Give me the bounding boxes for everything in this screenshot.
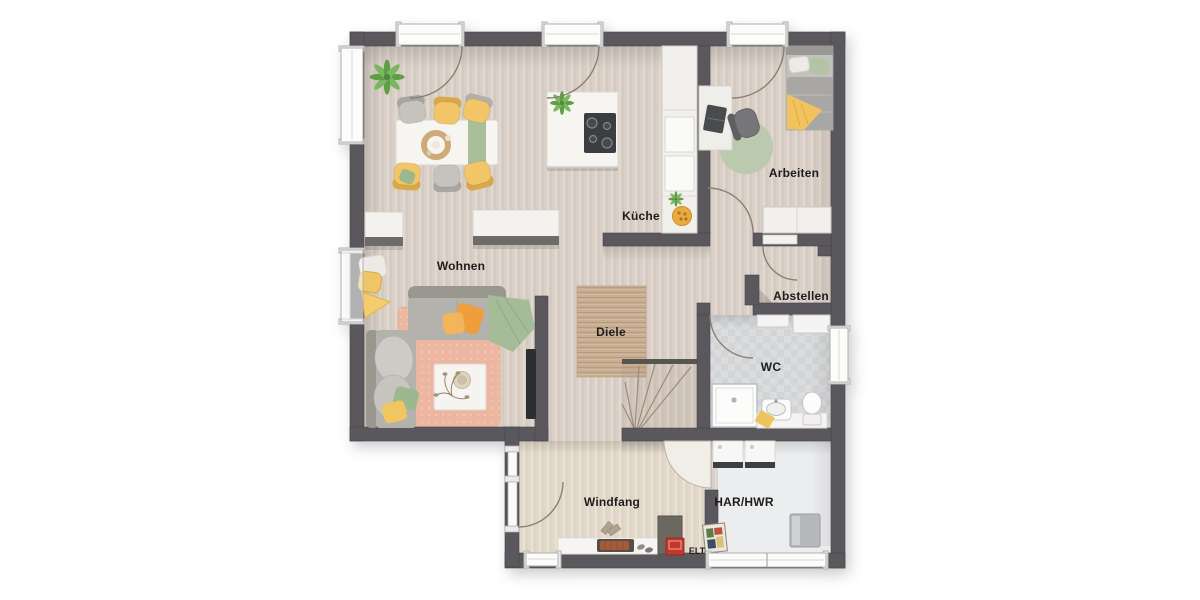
desk — [699, 86, 732, 150]
wc-shelf — [757, 315, 789, 327]
boiler — [790, 514, 820, 547]
office-cabinet — [763, 207, 831, 233]
shower — [712, 384, 757, 427]
room-label-windfang: Windfang — [584, 495, 640, 509]
staircase — [622, 359, 700, 428]
kitchen-tall-cabinet — [662, 46, 697, 233]
room-label-arbeiten: Arbeiten — [769, 166, 819, 180]
plant-icon — [550, 91, 574, 115]
wall-wc-north-right — [753, 303, 831, 315]
room-label-diele: Diele — [596, 325, 626, 339]
plant-icon — [370, 60, 405, 95]
floorplan-page: Wohnen Küche Arbeiten Abstellen WC Diele… — [0, 0, 1200, 600]
tv — [526, 349, 536, 419]
room-label-abstellen: Abstellen — [773, 289, 829, 303]
wall-wc-north-left — [697, 303, 710, 315]
room-label-wohnen: Wohnen — [437, 259, 485, 273]
wall-pier — [818, 246, 831, 256]
window-top-2 — [542, 22, 603, 47]
window-har-bottom — [706, 551, 828, 569]
floorplan: Wohnen Küche Arbeiten Abstellen WC Diele… — [339, 22, 850, 569]
window-left-seat — [339, 248, 364, 324]
sideboard-left — [365, 212, 403, 250]
wall-tv — [535, 296, 548, 441]
window-top-1 — [396, 22, 464, 47]
leaning-picture-deco — [703, 523, 728, 553]
room-label-kueche: Küche — [622, 209, 660, 223]
entry-bench — [597, 539, 634, 552]
toilet — [803, 392, 822, 425]
sideboard-mid — [473, 210, 559, 249]
wall-mid-horizontal — [622, 428, 831, 441]
wall-kitchen-bottom — [603, 233, 710, 246]
wall-abstellen-stub — [745, 275, 759, 305]
room-label-wc: WC — [761, 360, 782, 374]
room-label-elt: ELT — [689, 546, 706, 556]
kitchen-island — [547, 91, 618, 171]
bed — [786, 46, 833, 130]
wall-wc-west — [697, 315, 710, 428]
dining-table — [396, 120, 498, 165]
window-windfang-bottom — [524, 551, 561, 568]
wc-cabinet — [793, 315, 830, 333]
floorplan-svg: Wohnen Küche Arbeiten Abstellen WC Diele… — [0, 0, 1200, 600]
coffee-table — [434, 364, 487, 410]
window-top-3 — [727, 22, 788, 47]
room-label-har-hwr: HAR/HWR — [714, 495, 774, 509]
window-left-tall — [339, 46, 364, 144]
abstellen-door-leaf — [763, 235, 797, 244]
elt-panel — [666, 538, 684, 555]
window-wc — [828, 326, 850, 384]
